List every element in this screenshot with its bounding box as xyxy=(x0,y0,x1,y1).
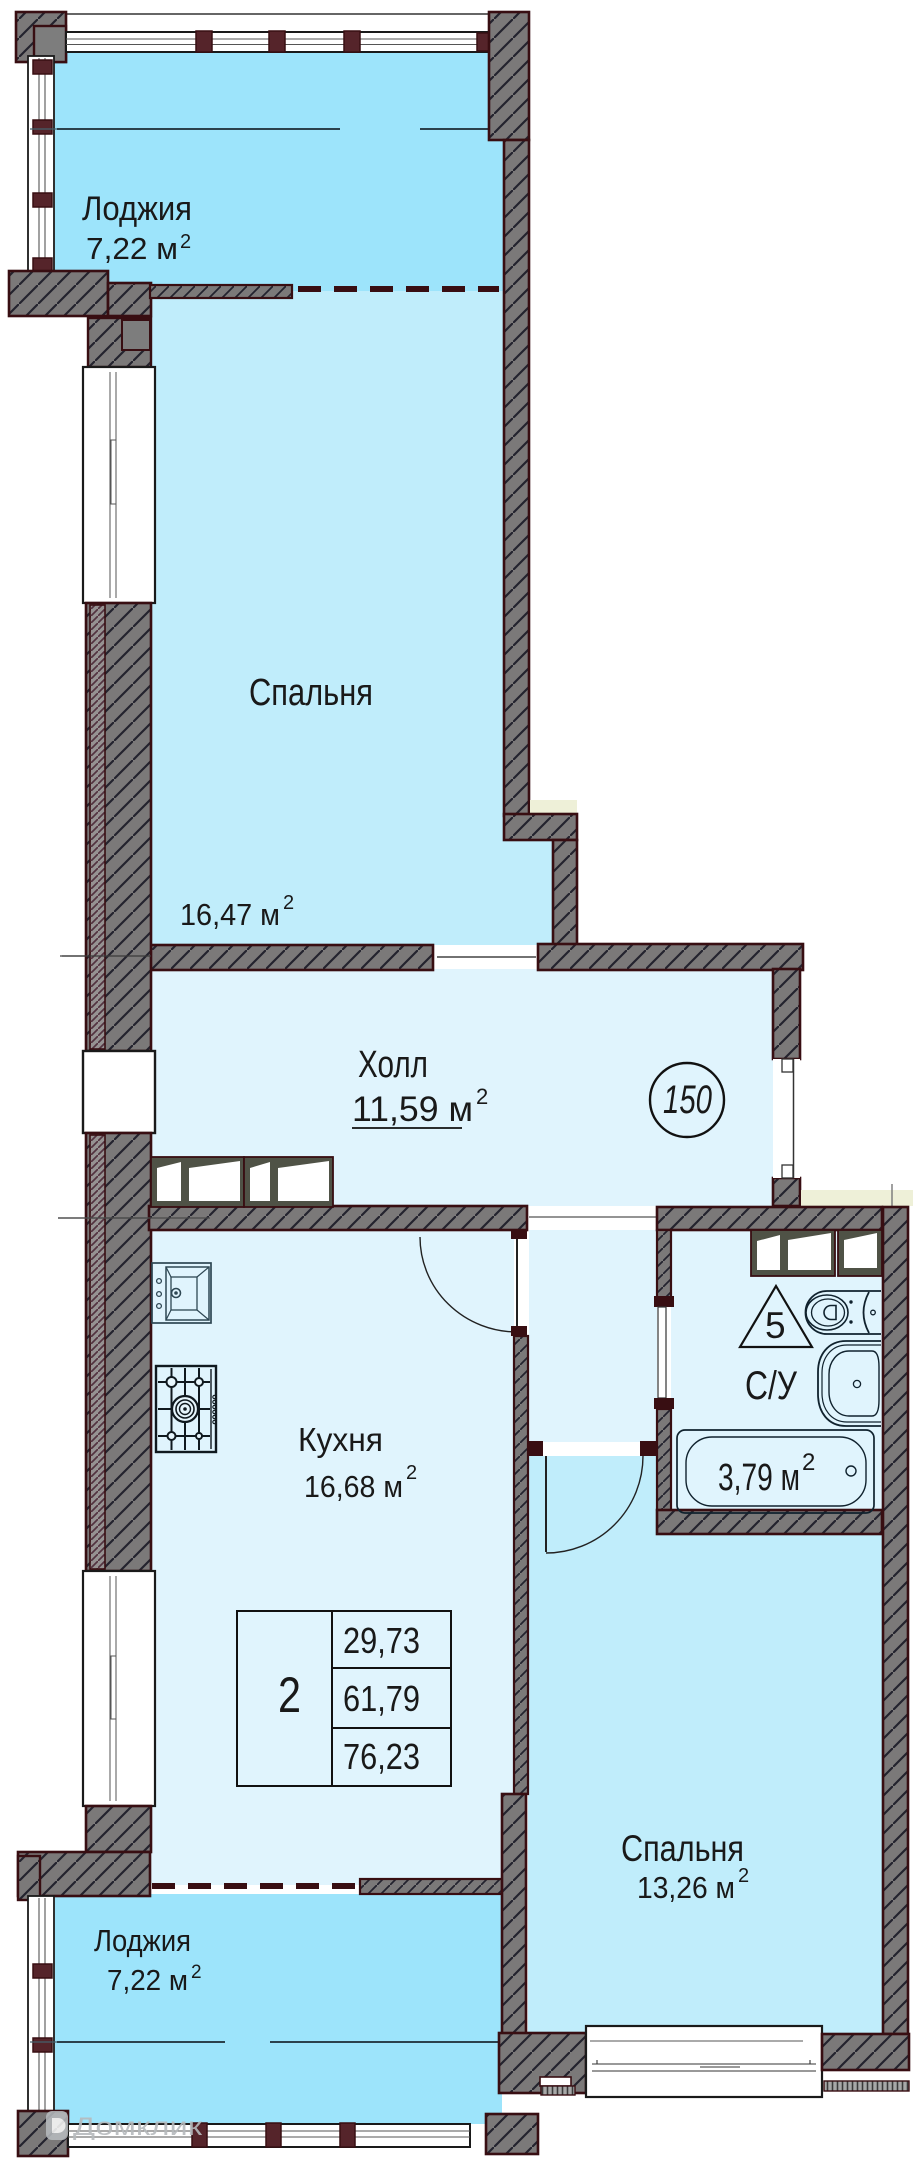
svg-text:2: 2 xyxy=(802,1449,815,1476)
svg-text:16,47 м: 16,47 м xyxy=(180,897,280,932)
svg-text:11,59 м: 11,59 м xyxy=(352,1090,473,1129)
svg-text:7,22 м: 7,22 м xyxy=(107,1965,188,1997)
svg-text:2: 2 xyxy=(191,1962,202,1983)
svg-text:2: 2 xyxy=(283,892,294,914)
svg-text:Лоджия: Лоджия xyxy=(82,190,192,228)
svg-text:Спальня: Спальня xyxy=(249,672,373,714)
svg-text:5: 5 xyxy=(765,1305,786,1346)
svg-text:2: 2 xyxy=(406,1462,417,1484)
svg-text:16,68 м: 16,68 м xyxy=(304,1469,403,1504)
svg-text:150: 150 xyxy=(663,1078,712,1122)
svg-text:61,79: 61,79 xyxy=(343,1678,420,1719)
svg-text:2: 2 xyxy=(476,1084,488,1109)
svg-text:76,23: 76,23 xyxy=(343,1736,420,1777)
svg-text:3,79 м: 3,79 м xyxy=(718,1457,800,1499)
svg-text:Домклик: Домклик xyxy=(73,2113,203,2141)
svg-text:2: 2 xyxy=(738,1865,749,1887)
svg-text:2: 2 xyxy=(278,1667,301,1723)
svg-text:Кухня: Кухня xyxy=(298,1421,383,1458)
svg-text:13,26 м: 13,26 м xyxy=(637,1870,735,1905)
svg-text:7,22 м: 7,22 м xyxy=(86,231,178,266)
svg-text:Спальня: Спальня xyxy=(621,1828,744,1869)
svg-text:Лоджия: Лоджия xyxy=(94,1923,191,1958)
svg-text:2: 2 xyxy=(180,231,191,253)
svg-text:Холл: Холл xyxy=(358,1044,428,1086)
svg-text:29,73: 29,73 xyxy=(343,1620,420,1661)
svg-text:С/У: С/У xyxy=(745,1364,797,1408)
